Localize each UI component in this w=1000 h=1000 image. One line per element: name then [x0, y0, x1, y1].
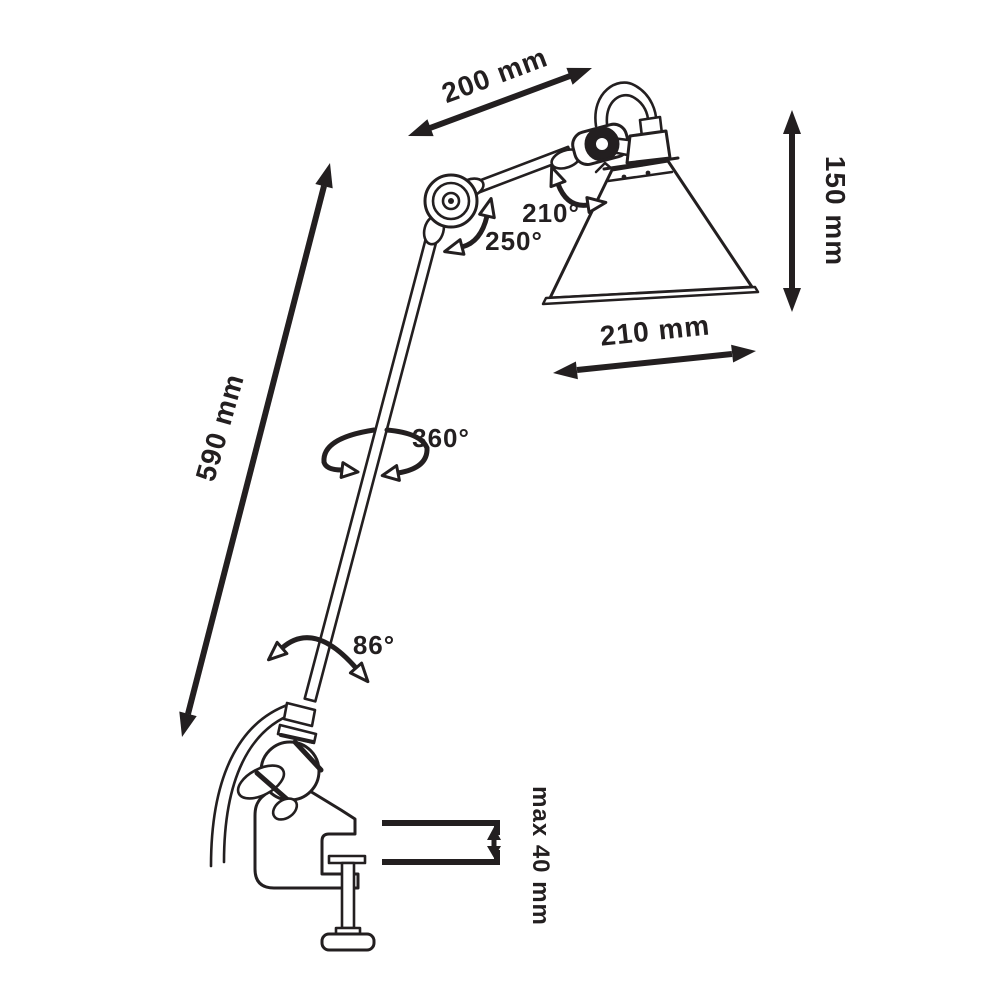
screw-dot	[646, 171, 651, 176]
dimension-label-150mm: 150 mm	[820, 156, 851, 266]
arrowhead-icon	[382, 466, 399, 481]
dimension-arrow-line	[577, 354, 732, 370]
pulley-axle-dot	[448, 198, 454, 204]
shade-cone	[550, 161, 752, 298]
angle-label-86: 86°	[353, 630, 395, 660]
dimension-label-200mm: 200 mm	[438, 41, 552, 109]
dimension-shade-diameter: 210 mm	[553, 309, 756, 379]
arrowhead-icon	[551, 167, 565, 187]
dimension-label-590mm: 590 mm	[190, 370, 250, 485]
annotation-arm-rotation: 360°	[324, 423, 470, 480]
clamp-screw-shaft	[342, 863, 354, 928]
screw-dot	[622, 175, 627, 180]
arrowhead-icon	[783, 288, 801, 312]
dimension-clamp-capacity: max 40 mm	[382, 786, 554, 926]
arrowhead-icon	[480, 199, 495, 218]
arrowhead-icon	[553, 362, 578, 380]
arrowhead-icon	[445, 240, 464, 255]
base-clamp	[233, 703, 374, 950]
diagram-canvas: 200 mm 150 mm 210 mm 590 mm 360°	[0, 0, 1000, 1000]
dimension-main-arm-length: 590 mm	[179, 163, 332, 737]
lamp-socket	[627, 131, 670, 163]
dimension-shade-height: 150 mm	[783, 110, 851, 312]
arm-collar	[284, 703, 315, 726]
clamp-knob	[322, 934, 374, 950]
dimension-label-210mm: 210 mm	[599, 309, 712, 351]
screw-dot	[639, 161, 644, 166]
arrowhead-icon	[731, 345, 756, 363]
head-joint	[549, 83, 670, 173]
dimension-upper-arm-length: 200 mm	[408, 41, 592, 136]
angle-label-250: 250°	[485, 226, 543, 256]
rotation-arc	[324, 462, 342, 470]
arrowhead-icon	[566, 68, 592, 85]
angle-label-360: 360°	[412, 423, 470, 453]
rotation-arc	[324, 430, 374, 462]
arrowhead-icon	[341, 463, 358, 478]
arrowhead-icon	[315, 163, 332, 188]
arrowhead-icon	[408, 119, 434, 136]
arrowhead-icon	[179, 712, 196, 738]
arrowhead-icon	[783, 110, 801, 134]
dimension-label-max40mm: max 40 mm	[527, 786, 554, 926]
angle-label-210: 210°	[522, 198, 580, 228]
lamp-technical-drawing: 200 mm 150 mm 210 mm 590 mm 360°	[0, 0, 1000, 1000]
joint-knuckle-hub	[595, 137, 610, 152]
lamp-shade	[543, 158, 758, 304]
